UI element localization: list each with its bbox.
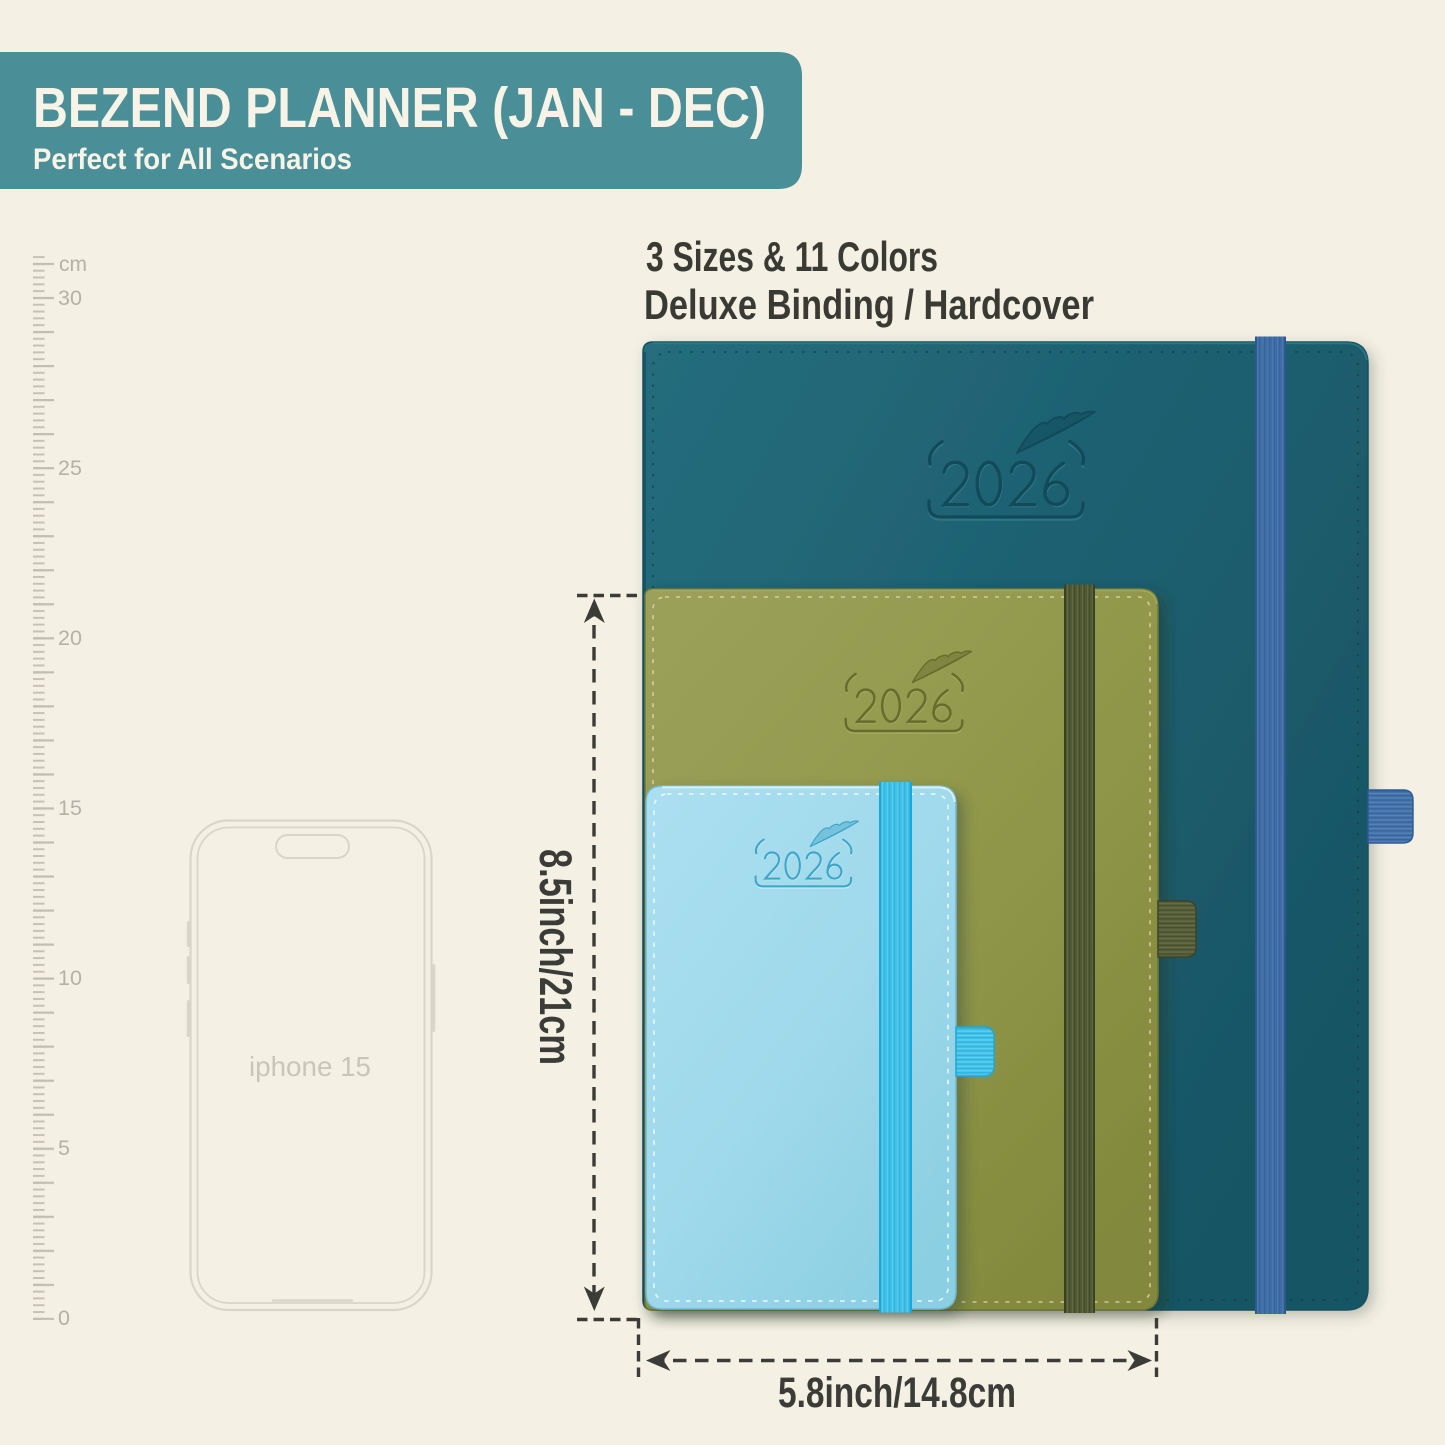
svg-text:25: 25 [58,456,82,480]
svg-text:8.5inch/21cm: 8.5inch/21cm [530,849,581,1065]
svg-text:BEZEND PLANNER (JAN - DEC): BEZEND PLANNER (JAN - DEC) [33,76,766,140]
svg-text:15: 15 [58,796,82,820]
svg-text:cm: cm [59,253,87,276]
svg-text:20: 20 [58,626,82,650]
svg-text:5: 5 [58,1136,70,1160]
svg-text:3 Sizes & 11 Colors: 3 Sizes & 11 Colors [646,233,938,280]
svg-text:10: 10 [58,966,82,990]
svg-text:Perfect for All Scenarios: Perfect for All Scenarios [33,143,352,176]
svg-text:Deluxe Binding / Hardcover: Deluxe Binding / Hardcover [644,281,1094,328]
svg-text:0: 0 [58,1306,70,1330]
svg-text:iphone 15: iphone 15 [249,1051,371,1082]
svg-text:5.8inch/14.8cm: 5.8inch/14.8cm [778,1369,1016,1417]
svg-text:30: 30 [58,286,82,310]
